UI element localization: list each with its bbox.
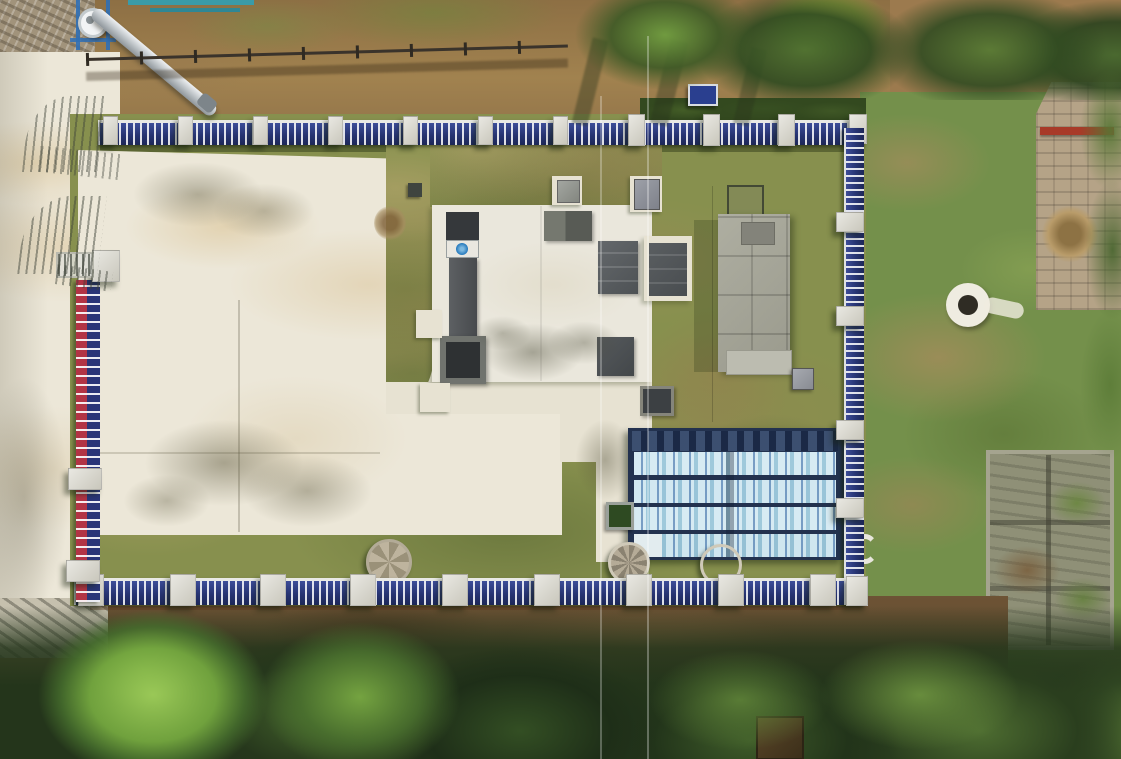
fence-post	[628, 114, 645, 146]
fence-post	[718, 574, 744, 606]
fence-post	[703, 114, 720, 146]
tank-mid-shade	[726, 452, 734, 557]
pad-unit-topmiddle	[544, 211, 592, 241]
boundary-post	[356, 45, 359, 58]
fence-corner-post-se	[846, 576, 868, 606]
notice-sign	[688, 84, 718, 106]
overhead-cable-3	[712, 186, 713, 422]
right-fence	[844, 128, 864, 604]
ac-unit	[557, 180, 580, 203]
pad-panel-east	[598, 241, 638, 294]
pav-dirt-patch	[374, 206, 406, 240]
small-box-west	[408, 183, 422, 197]
hut-roof	[756, 716, 804, 759]
boundary-post	[302, 47, 305, 60]
frame-structure	[727, 185, 764, 217]
tree-shadow-yard-bottom	[120, 400, 380, 540]
boundary-post	[518, 41, 521, 54]
fence-post	[836, 420, 864, 440]
boundary-post	[248, 48, 251, 61]
overhead-cable-1	[600, 96, 602, 759]
fence-post	[478, 116, 493, 145]
fence-post	[178, 116, 193, 145]
tree-shadow-yard-top	[110, 145, 330, 255]
boundary-post	[464, 42, 467, 55]
maker-logo	[456, 243, 468, 255]
fence-post	[836, 306, 864, 326]
fence-post	[170, 574, 196, 606]
building-shadow	[694, 220, 720, 372]
fence-post	[328, 116, 343, 145]
fence-post	[68, 468, 102, 490]
boundary-post	[410, 44, 413, 57]
screen-channel-top-box	[446, 212, 479, 240]
white-well-hole	[958, 295, 978, 315]
equip-box-se	[792, 368, 814, 390]
boundary-post	[140, 51, 143, 64]
stone-wall	[1036, 82, 1121, 310]
overhead-cable-2	[647, 36, 649, 759]
tank-top-band	[632, 431, 838, 451]
fence-post	[553, 116, 568, 145]
fence-post	[778, 114, 795, 146]
planter	[606, 502, 634, 530]
fence-post	[534, 574, 560, 606]
ruins-weeds	[990, 455, 1114, 647]
fence-post	[350, 574, 376, 606]
aerial-photo: Aerial drone photograph of a small fence…	[0, 0, 1121, 759]
teal-railing-2	[150, 8, 240, 12]
fence-post	[836, 212, 864, 232]
tank-row-1	[634, 452, 836, 475]
building-deck	[726, 350, 792, 375]
tank-row-3	[634, 507, 836, 530]
teal-railing	[128, 0, 254, 5]
fence-post	[103, 116, 118, 145]
sep-panel	[649, 243, 687, 296]
fence-post	[810, 574, 836, 606]
fence-post	[260, 574, 286, 606]
small-pad-2	[420, 383, 450, 412]
boundary-post	[86, 53, 89, 66]
fence-post	[66, 560, 100, 582]
left-fence	[76, 280, 100, 602]
grass-strip-rounded	[386, 138, 434, 414]
grass-above-pad	[430, 136, 662, 207]
boundary-post	[194, 50, 197, 63]
red-pipe	[1040, 127, 1114, 135]
fence-post	[442, 574, 468, 606]
fence-post	[403, 116, 418, 145]
small-pad-1	[416, 310, 442, 338]
dirt-slope	[108, 596, 1008, 700]
dirt-circle	[1042, 206, 1098, 262]
fence-post	[253, 116, 268, 145]
tank-row-2	[634, 480, 836, 503]
roof-hatch	[741, 222, 775, 245]
walkway-panel	[640, 386, 674, 416]
tree-shadow-pad	[465, 300, 635, 395]
fence-post	[836, 498, 864, 518]
